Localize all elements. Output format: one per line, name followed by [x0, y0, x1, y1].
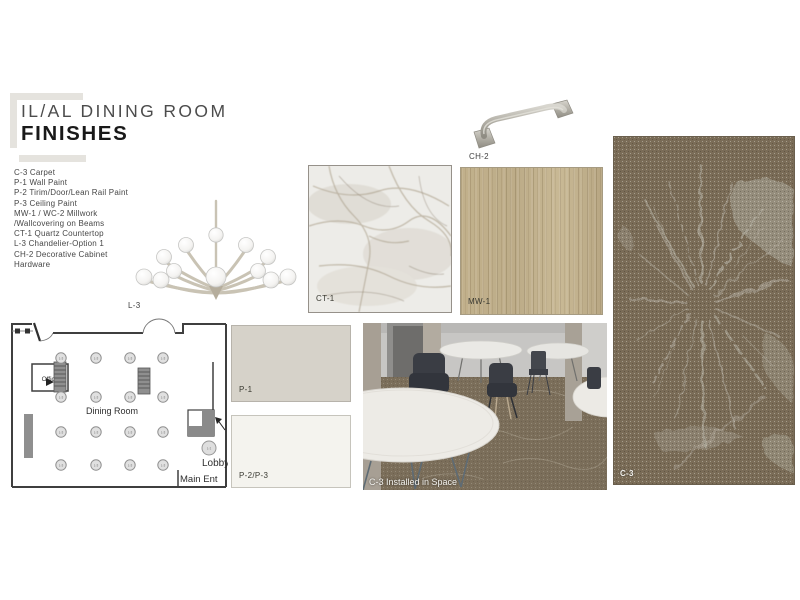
finish-board: IL/AL DINING ROOM FINISHES C-3 Carpet P-…: [0, 0, 800, 600]
paint-p1-label: P-1: [239, 385, 252, 394]
svg-text:L-3: L-3: [59, 430, 64, 434]
svg-text:L-3: L-3: [161, 463, 166, 467]
legend-item: MW-1 / WC-2 Millwork: [14, 209, 128, 219]
svg-text:L-3: L-3: [161, 356, 166, 360]
svg-text:L-3: L-3: [59, 395, 64, 399]
paint-p2p3-label: P-2/P-3: [239, 471, 268, 480]
accent-bar-left: [10, 93, 17, 148]
legend-item: P-3 Ceiling Paint: [14, 199, 128, 209]
svg-text:L-3: L-3: [161, 430, 166, 434]
legend-item: P-2 Tirim/Door/Lean Rail Paint: [14, 188, 128, 198]
legend-item: P-1 Wall Paint: [14, 178, 128, 188]
paint-swatch-p1: P-1: [231, 325, 351, 402]
svg-text:L-3: L-3: [128, 395, 133, 399]
svg-text:L-3: L-3: [94, 356, 99, 360]
plan-walls: [12, 323, 226, 487]
svg-text:L-3: L-3: [59, 356, 64, 360]
paint-swatch-p2p3: P-2/P-3: [231, 415, 351, 488]
installed-photo-label: C-3 Installed in Space: [369, 477, 457, 487]
page-subtitle: FINISHES: [21, 122, 128, 146]
plan-main-entrance-label: Main Ent: [180, 474, 218, 485]
svg-text:L-3: L-3: [94, 395, 99, 399]
svg-text:L-3: L-3: [128, 463, 133, 467]
cabinet-handle-image: [468, 98, 580, 153]
plan-cursor-arrow-icon: [215, 417, 222, 424]
legend-item: CT-1 Quartz Countertop: [14, 229, 128, 239]
millwork-swatch-mw1: MW-1: [460, 167, 603, 315]
legend-item: CH-2 Decorative Cabinet: [14, 250, 128, 260]
page-title: IL/AL DINING ROOM: [21, 101, 227, 122]
finish-legend: C-3 Carpet P-1 Wall Paint P-2 Tirim/Door…: [14, 168, 128, 270]
legend-item: L-3 Chandelier-Option 1: [14, 239, 128, 249]
millwork-label: MW-1: [468, 297, 490, 306]
plan-doors: [12, 319, 175, 341]
hardware-label: CH-2: [469, 152, 489, 161]
plan-lobby-label: Lobby: [202, 458, 228, 469]
svg-text:L-3: L-3: [94, 430, 99, 434]
plan-dining-room-label: Dining Room: [86, 406, 138, 416]
svg-text:L-1: L-1: [207, 447, 212, 451]
chandelier-label: L-3: [128, 301, 140, 310]
countertop-label: CT-1: [316, 294, 335, 303]
legend-item: /Wallcovering on Beams: [14, 219, 128, 229]
svg-text:L-3: L-3: [59, 463, 64, 467]
carpet-swatch-c3: C-3: [613, 136, 795, 485]
legend-item: C-3 Carpet: [14, 168, 128, 178]
carpet-label: C-3: [620, 469, 634, 478]
accent-bar-top: [10, 93, 83, 100]
svg-text:L-3: L-3: [128, 356, 133, 360]
plan-lobby: L-1 Lobby Main Ent: [180, 410, 228, 485]
installed-photo: C-3 Installed in Space: [363, 323, 607, 490]
floor-plan: Office L-3 L-3 L-3 L-3 L-3 L-3 L-3 L-3: [10, 318, 228, 490]
handle-shape: [474, 100, 573, 148]
legend-item: Hardware: [14, 260, 128, 270]
svg-text:L-3: L-3: [128, 430, 133, 434]
countertop-swatch-ct1: CT-1: [308, 165, 452, 313]
chandelier-image: [123, 197, 309, 301]
accent-bar-under-title: [19, 155, 86, 162]
svg-text:L-3: L-3: [94, 463, 99, 467]
svg-text:L-3: L-3: [161, 395, 166, 399]
